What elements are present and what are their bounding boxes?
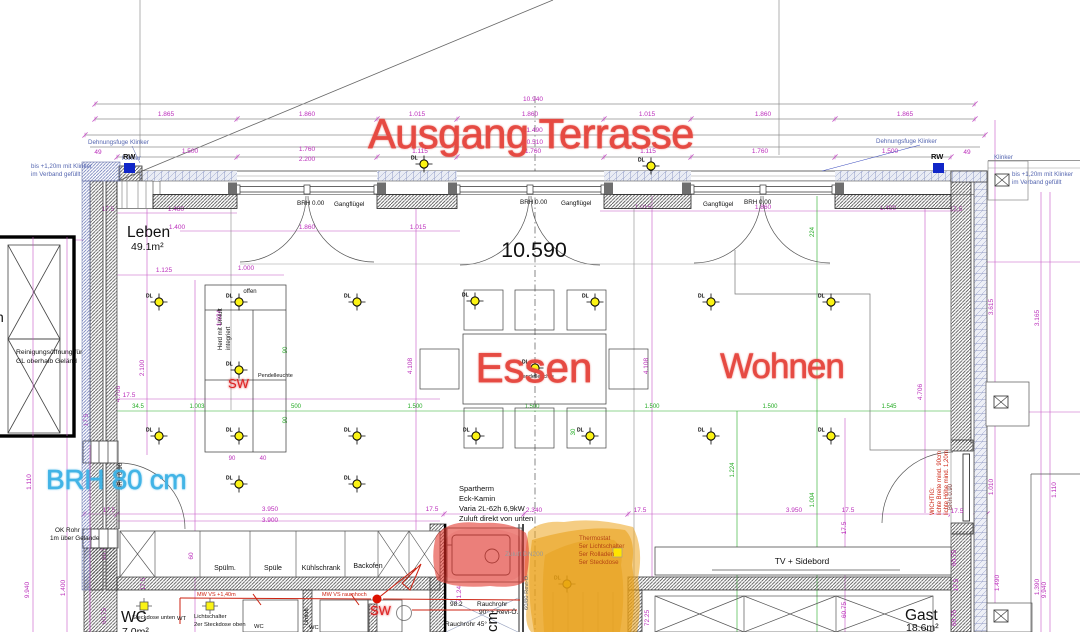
- svg-text:Pendelleuchte: Pendelleuchte: [258, 373, 293, 379]
- svg-text:1.015: 1.015: [410, 224, 427, 231]
- svg-text:17.5: 17.5: [953, 578, 960, 591]
- svg-text:1.545: 1.545: [881, 404, 897, 410]
- svg-text:WT: WT: [177, 616, 186, 622]
- svg-text:BRH 0.90: BRH 0.90: [948, 483, 954, 510]
- svg-text:7.0m²: 7.0m²: [122, 626, 149, 632]
- svg-text:Essen: Essen: [476, 344, 593, 391]
- svg-text:Klinker: Klinker: [994, 154, 1013, 161]
- svg-text:Wohnen: Wohnen: [720, 347, 844, 386]
- svg-text:9.940: 9.940: [1041, 581, 1048, 598]
- svg-text:17.5: 17.5: [841, 521, 848, 534]
- svg-text:1.000: 1.000: [238, 265, 255, 272]
- svg-text:1.490: 1.490: [994, 574, 1001, 591]
- svg-text:90° + Revi-Ö.: 90° + Revi-Ö.: [479, 608, 518, 616]
- svg-text:SW: SW: [228, 376, 250, 391]
- svg-text:1.865: 1.865: [158, 111, 175, 118]
- svg-text:1.860: 1.860: [755, 111, 772, 118]
- svg-text:Spüle: Spüle: [264, 565, 282, 572]
- svg-text:MW VS +1,40m: MW VS +1,40m: [197, 592, 236, 598]
- svg-text:OK Rohr: OK Rohr: [55, 527, 81, 534]
- svg-text:Dehnungsfuge Klinker: Dehnungsfuge Klinker: [876, 138, 937, 145]
- svg-text:1m über Gelande: 1m über Gelande: [50, 535, 100, 542]
- svg-text:Rauchrohr 45°: Rauchrohr 45°: [445, 620, 487, 628]
- svg-text:BRH 0.00: BRH 0.00: [297, 200, 325, 207]
- svg-text:1.400: 1.400: [60, 579, 67, 596]
- svg-text:2.100: 2.100: [139, 359, 146, 376]
- svg-text:17.5: 17.5: [842, 507, 855, 514]
- svg-text:5er Steckdose: 5er Steckdose: [579, 559, 619, 566]
- svg-text:60: 60: [188, 552, 195, 560]
- svg-text:3.165: 3.165: [1034, 309, 1041, 326]
- svg-text:Gangflügel: Gangflügel: [334, 201, 364, 208]
- svg-text:RW: RW: [931, 152, 944, 161]
- svg-text:40: 40: [260, 456, 267, 462]
- svg-text:60.75: 60.75: [841, 601, 848, 618]
- svg-text:im Verband gefüllt: im Verband gefüllt: [31, 171, 81, 178]
- svg-text:60.75: 60.75: [951, 549, 958, 566]
- svg-text:1.865: 1.865: [897, 111, 914, 118]
- svg-text:49: 49: [963, 149, 971, 156]
- svg-text:5er Rolladen: 5er Rolladen: [579, 551, 615, 558]
- svg-text:49: 49: [94, 149, 102, 156]
- svg-text:1.500: 1.500: [182, 148, 199, 155]
- svg-text:Gangflügel: Gangflügel: [703, 201, 733, 208]
- svg-text:WC: WC: [309, 625, 319, 631]
- svg-text:90: 90: [229, 456, 236, 462]
- svg-text:1.110: 1.110: [1051, 482, 1058, 498]
- svg-text:2.200: 2.200: [299, 156, 316, 163]
- svg-text:Umluft: Umluft: [304, 608, 310, 625]
- svg-text:1.390: 1.390: [1034, 578, 1041, 595]
- svg-text:Eck-Kamin: Eck-Kamin: [459, 494, 495, 503]
- svg-text:1.860: 1.860: [299, 224, 316, 231]
- svg-text:Lichtschalter: Lichtschalter: [194, 614, 227, 620]
- svg-text:1.400: 1.400: [169, 224, 186, 231]
- svg-text:2.340: 2.340: [526, 507, 543, 514]
- svg-text:98.2: 98.2: [450, 601, 463, 608]
- svg-text:4.706: 4.706: [917, 383, 924, 400]
- svg-text:17.5: 17.5: [123, 392, 136, 399]
- svg-text:GL oberhalb Geländ: GL oberhalb Geländ: [16, 358, 77, 365]
- svg-text:1.760: 1.760: [299, 146, 316, 153]
- svg-text:9.940: 9.940: [24, 581, 31, 598]
- svg-text:3.950: 3.950: [262, 506, 279, 513]
- svg-text:BRH 80 cm: BRH 80 cm: [46, 464, 186, 495]
- svg-text:WICHTIG:: WICHTIG:: [930, 487, 936, 515]
- svg-text:4.108: 4.108: [643, 357, 650, 374]
- svg-text:Ausgang Terrasse: Ausgang Terrasse: [368, 110, 694, 157]
- svg-text:1.500: 1.500: [644, 404, 660, 410]
- svg-text:1.224: 1.224: [730, 462, 736, 478]
- svg-text:bis +1,20m mit Klinker: bis +1,20m mit Klinker: [1012, 171, 1073, 178]
- svg-text:17.5: 17.5: [634, 507, 647, 514]
- svg-text:offen: offen: [243, 289, 256, 295]
- svg-text:3.900: 3.900: [262, 517, 279, 524]
- svg-text:1.500: 1.500: [762, 404, 778, 410]
- svg-text:RW: RW: [123, 152, 136, 161]
- svg-text:72.25: 72.25: [644, 609, 651, 626]
- svg-text:1.125: 1.125: [156, 267, 173, 274]
- svg-text:im Verband gefüllt: im Verband gefüllt: [1012, 179, 1062, 186]
- svg-text:1.500: 1.500: [407, 404, 423, 410]
- svg-text:34.5: 34.5: [132, 404, 144, 410]
- svg-text:1.500: 1.500: [524, 404, 540, 410]
- svg-text:224: 224: [810, 226, 816, 237]
- svg-text:1.110: 1.110: [26, 474, 33, 490]
- svg-text:Thermostat: Thermostat: [579, 535, 611, 542]
- svg-text:integriert: integriert: [226, 326, 232, 350]
- svg-text:Spartherm: Spartherm: [459, 484, 494, 493]
- svg-text:lichte Breite mind. 90cm: lichte Breite mind. 90cm: [937, 451, 943, 515]
- svg-text:60.75: 60.75: [951, 609, 958, 626]
- svg-text:2er Steckdose oben: 2er Steckdose oben: [194, 622, 246, 628]
- svg-text:10.590: 10.590: [501, 238, 567, 262]
- svg-text:49.1m²: 49.1m²: [131, 241, 164, 253]
- svg-text:MW VS raumhoch: MW VS raumhoch: [322, 592, 367, 598]
- svg-text:Herd mit Umluft: Herd mit Umluft: [218, 308, 224, 350]
- svg-text:10.940: 10.940: [523, 96, 543, 103]
- svg-text:Varia 2L-62h 6,9kW: Varia 2L-62h 6,9kW: [459, 504, 526, 513]
- svg-text:17.5: 17.5: [426, 506, 439, 513]
- svg-text:Dehnungsfuge Klinker: Dehnungsfuge Klinker: [88, 139, 149, 146]
- svg-text:Reinigungsöffnung für: Reinigungsöffnung für: [16, 349, 83, 356]
- svg-text:Kühlschrank: Kühlschrank: [302, 565, 341, 572]
- svg-text:500: 500: [291, 404, 302, 410]
- svg-text:Rauchrohr: Rauchrohr: [477, 601, 508, 608]
- svg-text:5er Lichtschalter: 5er Lichtschalter: [579, 543, 624, 550]
- svg-text:Steckdose unten: Steckdose unten: [132, 615, 175, 621]
- svg-text:1.004: 1.004: [810, 492, 816, 508]
- svg-text:Zuluft direkt von unten: Zuluft direkt von unten: [459, 514, 533, 523]
- svg-text:1.003: 1.003: [189, 404, 205, 410]
- svg-text:Spülm.: Spülm.: [214, 565, 236, 572]
- svg-text:WC: WC: [254, 624, 264, 630]
- svg-text:TV + Sidebord: TV + Sidebord: [775, 556, 830, 566]
- svg-text:60/80 Revi-Ö.: 60/80 Revi-Ö.: [523, 574, 530, 610]
- svg-text:1.860: 1.860: [299, 111, 316, 118]
- svg-text:n: n: [0, 309, 4, 325]
- svg-text:Leben: Leben: [127, 224, 170, 241]
- svg-text:BRH 0.00: BRH 0.00: [520, 199, 548, 206]
- svg-text:4.108: 4.108: [407, 357, 414, 374]
- svg-text:1.760: 1.760: [752, 148, 769, 155]
- svg-text:bis +1,20m mit Klinker: bis +1,20m mit Klinker: [31, 163, 92, 170]
- svg-text:18.6m²: 18.6m²: [906, 622, 939, 632]
- svg-text:Gangflügel: Gangflügel: [561, 200, 591, 207]
- svg-text:BRH 0.00: BRH 0.00: [744, 199, 772, 206]
- svg-text:Zuluft DN200: Zuluft DN200: [505, 551, 544, 558]
- svg-text:SW: SW: [370, 603, 392, 618]
- svg-text:Backofen: Backofen: [353, 563, 382, 570]
- svg-text:3.950: 3.950: [786, 507, 803, 514]
- svg-text:1.010: 1.010: [988, 478, 995, 495]
- svg-text:3.615: 3.615: [988, 298, 995, 315]
